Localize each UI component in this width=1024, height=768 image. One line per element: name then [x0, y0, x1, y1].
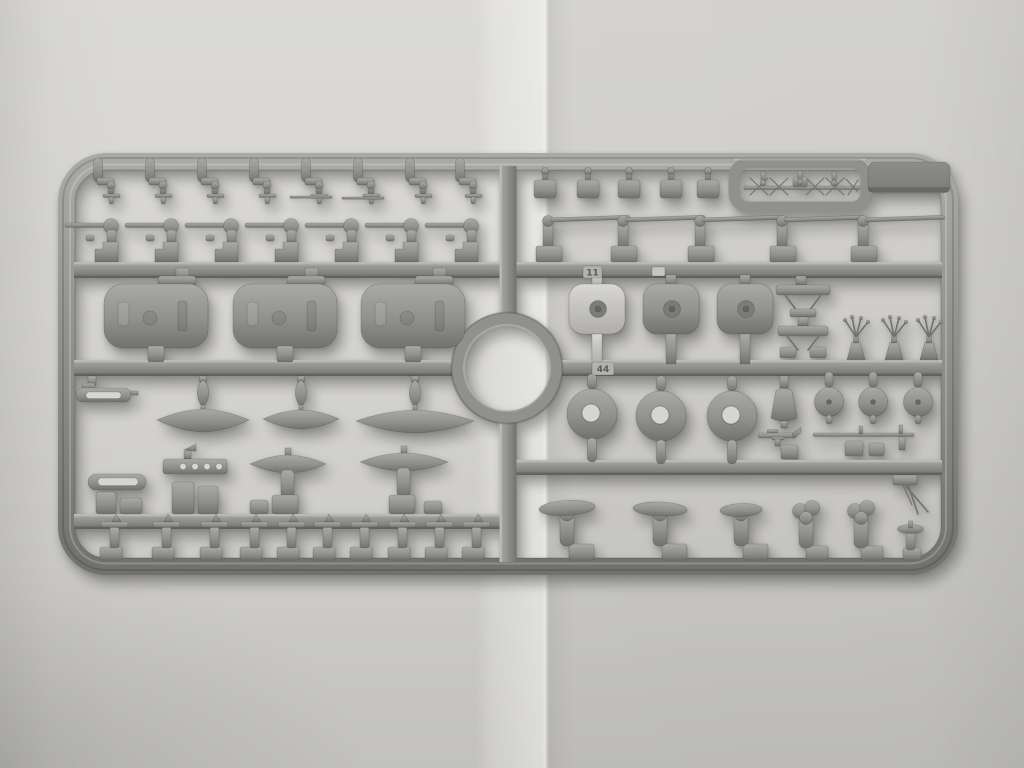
- part-turret-base: [717, 275, 773, 364]
- part-mast-sprig: [843, 315, 870, 360]
- runner-horizontal-middle-right: [562, 360, 942, 376]
- part-disc-large: [636, 376, 686, 464]
- molded-number-tag: 44: [592, 362, 614, 375]
- part-main-turret: [233, 268, 337, 362]
- molded-number-tag: 11: [583, 266, 602, 279]
- part-boat-skid-cap: [720, 503, 762, 517]
- part-group-boat-skids: [539, 499, 924, 560]
- part-gun-long-barrel: [770, 215, 864, 262]
- part-boat-connector: [409, 376, 420, 411]
- part-group-long-guns: [536, 215, 945, 262]
- part-mast-sprig: [881, 315, 908, 360]
- molded-part-number: 11: [586, 269, 599, 279]
- part-drilled-platform: [163, 444, 227, 514]
- part-gun-mount-small: [305, 219, 359, 263]
- part-group-base-plates: [569, 275, 773, 364]
- part-gun-mount-small: [425, 219, 479, 263]
- part-boat-hull: [356, 410, 474, 433]
- part-davit-whisker: [342, 197, 384, 199]
- sprue: 11 44: [63, 158, 953, 570]
- part-crane-bracket: [776, 276, 830, 358]
- sprue-center-ring: [452, 313, 563, 424]
- sprue-blank-tab: [868, 162, 950, 193]
- part-square-fitting: [660, 168, 682, 199]
- part-torpedo-fitting: [76, 376, 138, 402]
- photo-background-paper: 11 44: [0, 0, 1024, 768]
- part-disc-large: [567, 374, 617, 462]
- sprue-photo-canvas: 11 44: [0, 0, 1024, 768]
- part-square-fitting: [534, 168, 556, 199]
- part-main-turret: [361, 268, 465, 362]
- part-antenna-rod: [893, 475, 928, 514]
- part-disc-small: [859, 372, 888, 424]
- part-boat-skid-cap: [633, 501, 687, 517]
- part-gun-mount-small: [365, 219, 419, 263]
- molded-blank-tag: [652, 267, 665, 276]
- part-disc-small: [904, 372, 933, 424]
- runner-vertical-center: [500, 166, 517, 562]
- part-radar-antenna: [744, 171, 860, 195]
- part-turret-base-pale: [569, 275, 625, 364]
- part-boat-connector: [197, 376, 208, 411]
- part-gun-mount-small: [125, 219, 179, 263]
- part-funnel-cap: [771, 376, 797, 428]
- molded-part-number: 44: [597, 365, 610, 375]
- part-group-small-guns: [65, 219, 479, 263]
- part-gun-long-barrel: [851, 215, 945, 262]
- part-slotted-frame: [88, 474, 146, 514]
- part-small-skid: [898, 521, 924, 560]
- part-disc-large: [707, 376, 757, 464]
- part-square-fitting: [618, 168, 640, 199]
- part-boat-hull: [157, 409, 249, 432]
- part-davit-whisker: [290, 196, 332, 198]
- part-group-boats: [157, 376, 474, 433]
- part-turret-base: [643, 275, 699, 364]
- runner-horizontal-middle-left: [74, 360, 452, 376]
- part-winch-post: [848, 501, 884, 561]
- part-winch-post: [793, 501, 829, 561]
- part-group-mast-sprigs: [843, 315, 943, 360]
- part-gun-long-barrel: [688, 215, 782, 262]
- part-float-pedestal: [250, 448, 326, 514]
- part-boat-hull: [263, 410, 339, 429]
- part-main-turret: [104, 268, 208, 362]
- part-aa-gun: [758, 427, 801, 459]
- part-boat-skid-cap: [539, 499, 596, 517]
- part-gun-mount-small: [245, 219, 299, 263]
- part-gun-boom: [813, 425, 914, 456]
- part-group-main-turrets: [104, 268, 465, 362]
- part-disc-small: [815, 372, 844, 424]
- part-gun-mount-small: [185, 219, 239, 263]
- part-float-pedestal: [360, 446, 448, 514]
- part-square-fitting: [577, 168, 599, 199]
- part-square-fitting: [697, 168, 719, 199]
- part-boat-connector: [295, 376, 306, 411]
- part-mast-sprig: [916, 315, 943, 360]
- part-group-square-fittings: [534, 168, 719, 199]
